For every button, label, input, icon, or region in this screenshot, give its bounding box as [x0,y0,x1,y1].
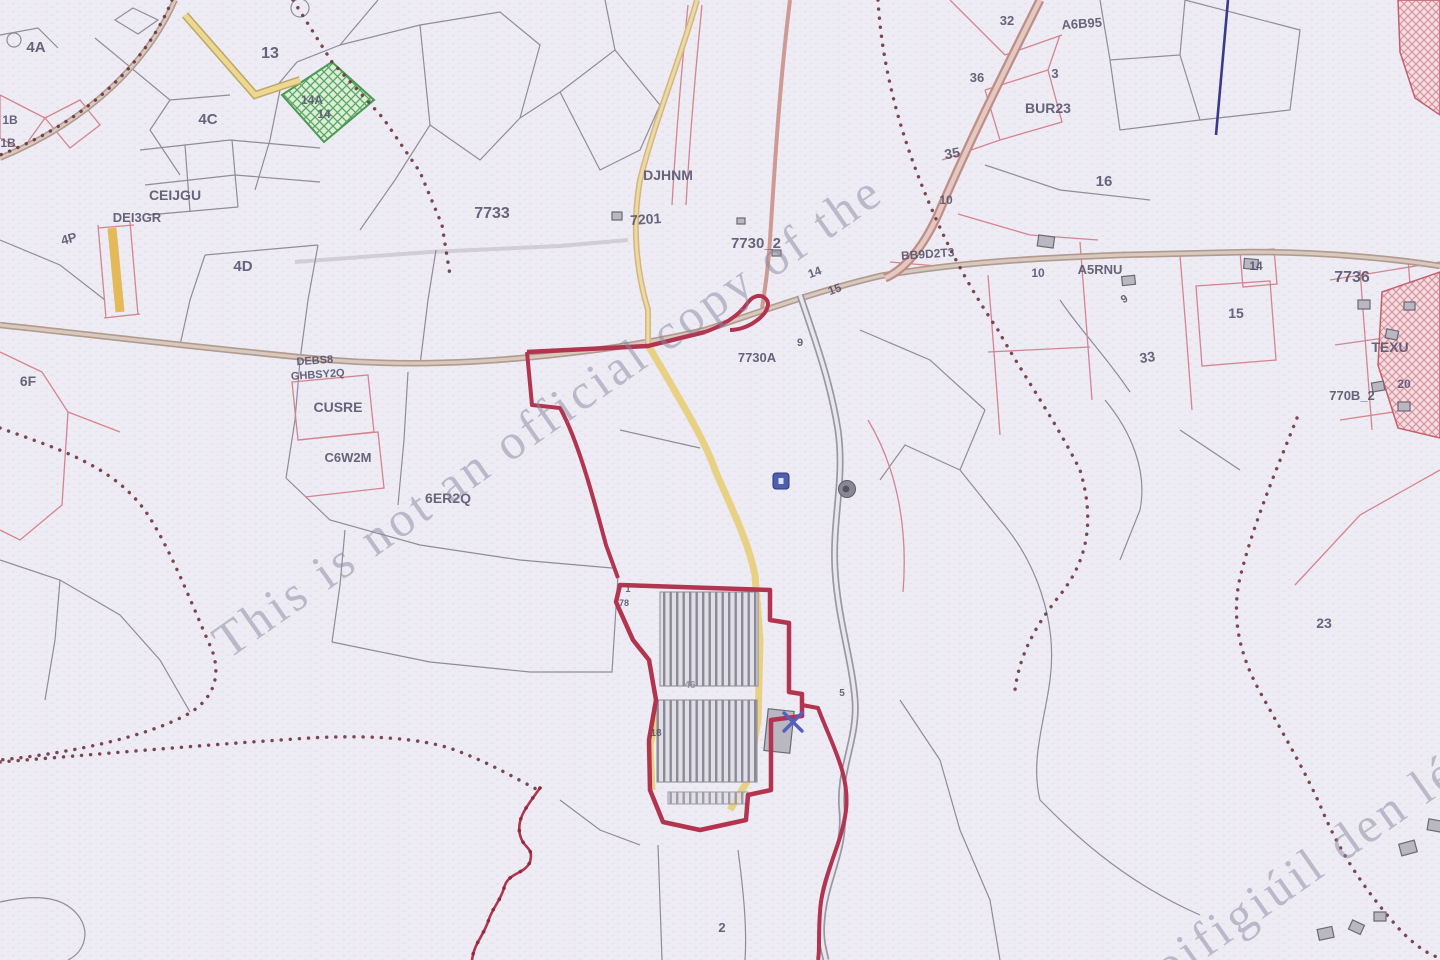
map-label-texu: TEXU [1371,339,1408,355]
map-label-6f: 6F [20,373,37,389]
map-label-ceijgu: CEIJGU [149,187,201,203]
map-label-djhnm: DJHNM [643,167,693,183]
map-label-36: 36 [970,70,984,85]
map-label-10: 10 [939,193,953,207]
map-label-33: 33 [1138,348,1156,366]
blue-square-marker-icon [773,473,789,489]
map-sheet: 4A134C14A141B1B4PDEI3GRCEIJGU4D6F7733DJH… [0,0,1440,960]
map-label-10: 10 [1031,266,1045,280]
map-label-16: 16 [1096,173,1113,190]
map-label-a6b95: A6B95 [1061,15,1102,33]
map-label-5: 5 [839,688,845,699]
map-label-46: 46 [684,680,696,691]
map-label-3: 3 [1051,66,1058,81]
map-label-bur23: BUR23 [1025,100,1071,116]
map-label-c6w2m: C6W2M [325,450,372,465]
map-label-23: 23 [1316,615,1332,631]
map-label-9: 9 [797,337,803,349]
map-label-14: 14 [1249,259,1263,273]
map-label-cusre: CUSRE [313,399,362,415]
map-label-a5rnu: A5RNU [1078,262,1123,277]
map-canvas[interactable]: 4A134C14A141B1B4PDEI3GRCEIJGU4D6F7733DJH… [0,0,1440,960]
map-label-32: 32 [1000,13,1014,28]
map-label-7730a: 7730A [738,350,777,365]
map-label-1b: 1B [2,113,18,127]
map-label-1b: 1B [0,136,16,150]
map-label-2: 2 [718,920,725,935]
map-label-4a: 4A [26,39,45,56]
map-label-13: 13 [261,45,279,62]
map-label-14: 14 [317,107,331,121]
map-label-4c: 4C [198,111,217,128]
map-label-35: 35 [943,144,961,162]
map-label-4d: 4D [233,258,252,275]
gray-circle-marker-icon [839,481,856,498]
map-label-78: 78 [619,598,629,608]
map-label-20: 20 [1397,377,1411,391]
map-label-debs8: DEBS8 [296,354,333,369]
map-label-dei3gr: DEI3GR [113,210,162,225]
map-label-18: 18 [650,728,662,739]
map-label-14a: 14A [301,93,323,107]
map-label-770b-2: 770B_2 [1329,388,1375,403]
map-label-1: 1 [625,584,630,594]
map-label-7736: 7736 [1334,269,1370,286]
map-label-7201: 7201 [630,210,662,228]
map-label-15: 15 [1228,305,1244,321]
map-label-7733: 7733 [474,205,510,222]
